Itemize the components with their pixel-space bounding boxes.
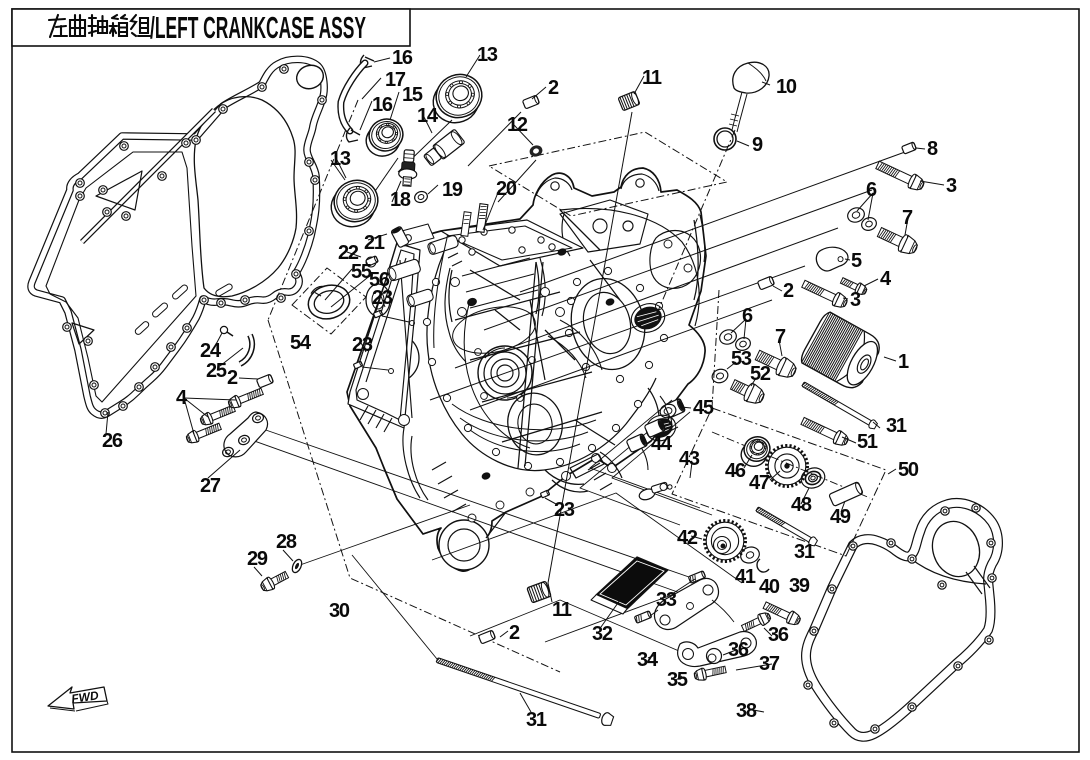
- svg-text:5: 5: [851, 250, 862, 272]
- svg-text:6: 6: [866, 179, 877, 201]
- svg-text:48: 48: [791, 494, 812, 516]
- svg-text:2: 2: [548, 77, 559, 99]
- svg-text:37: 37: [759, 653, 780, 675]
- svg-text:/LEFT CRANKCASE ASSY: /LEFT CRANKCASE ASSY: [150, 10, 366, 45]
- svg-text:19: 19: [442, 179, 463, 201]
- svg-text:24: 24: [200, 340, 222, 362]
- svg-text:50: 50: [898, 459, 919, 481]
- svg-text:45: 45: [693, 397, 714, 419]
- svg-text:23: 23: [372, 287, 393, 309]
- svg-text:23: 23: [352, 334, 373, 356]
- svg-text:18: 18: [390, 189, 411, 211]
- svg-text:39: 39: [789, 575, 810, 597]
- svg-text:7: 7: [775, 326, 786, 348]
- svg-text:11: 11: [552, 599, 572, 621]
- svg-text:44: 44: [651, 433, 673, 455]
- svg-text:33: 33: [656, 589, 677, 611]
- svg-text:15: 15: [402, 84, 423, 106]
- svg-text:12: 12: [507, 114, 528, 136]
- svg-text:38: 38: [736, 700, 757, 722]
- svg-text:21: 21: [364, 232, 385, 254]
- svg-text:7: 7: [902, 207, 913, 229]
- svg-text:16: 16: [372, 94, 393, 116]
- svg-text:26: 26: [102, 430, 123, 452]
- svg-text:2: 2: [509, 622, 520, 644]
- svg-text:10: 10: [776, 76, 797, 98]
- svg-text:27: 27: [200, 475, 221, 497]
- svg-text:13: 13: [330, 148, 351, 170]
- svg-text:23: 23: [554, 499, 575, 521]
- svg-text:34: 34: [637, 649, 659, 671]
- svg-text:2: 2: [783, 280, 794, 302]
- svg-text:52: 52: [750, 363, 771, 385]
- svg-text:54: 54: [290, 332, 312, 354]
- svg-text:41: 41: [735, 566, 756, 588]
- svg-text:25: 25: [206, 360, 227, 382]
- svg-text:1: 1: [898, 351, 909, 373]
- svg-text:28: 28: [276, 531, 297, 553]
- svg-text:13: 13: [477, 44, 498, 66]
- svg-text:31: 31: [794, 541, 815, 563]
- svg-text:32: 32: [592, 623, 613, 645]
- svg-text:31: 31: [886, 415, 907, 437]
- svg-text:20: 20: [496, 178, 517, 200]
- svg-text:14: 14: [417, 105, 439, 127]
- svg-text:3: 3: [946, 175, 957, 197]
- svg-text:47: 47: [749, 472, 770, 494]
- svg-text:11: 11: [642, 67, 662, 89]
- svg-text:3: 3: [850, 289, 861, 311]
- svg-text:49: 49: [830, 506, 851, 528]
- svg-text:35: 35: [667, 669, 688, 691]
- svg-text:9: 9: [752, 134, 763, 156]
- svg-text:16: 16: [392, 47, 413, 69]
- svg-text:36: 36: [768, 624, 789, 646]
- svg-text:53: 53: [731, 348, 752, 370]
- svg-text:8: 8: [927, 138, 938, 160]
- svg-text:2: 2: [227, 367, 238, 389]
- svg-text:40: 40: [759, 576, 780, 598]
- svg-text:43: 43: [679, 448, 700, 470]
- svg-text:42: 42: [677, 527, 698, 549]
- svg-text:30: 30: [329, 600, 350, 622]
- svg-text:6: 6: [742, 305, 753, 327]
- svg-text:46: 46: [725, 460, 746, 482]
- svg-text:29: 29: [247, 548, 268, 570]
- svg-text:36: 36: [728, 639, 749, 661]
- svg-text:31: 31: [526, 709, 547, 731]
- svg-text:51: 51: [857, 431, 878, 453]
